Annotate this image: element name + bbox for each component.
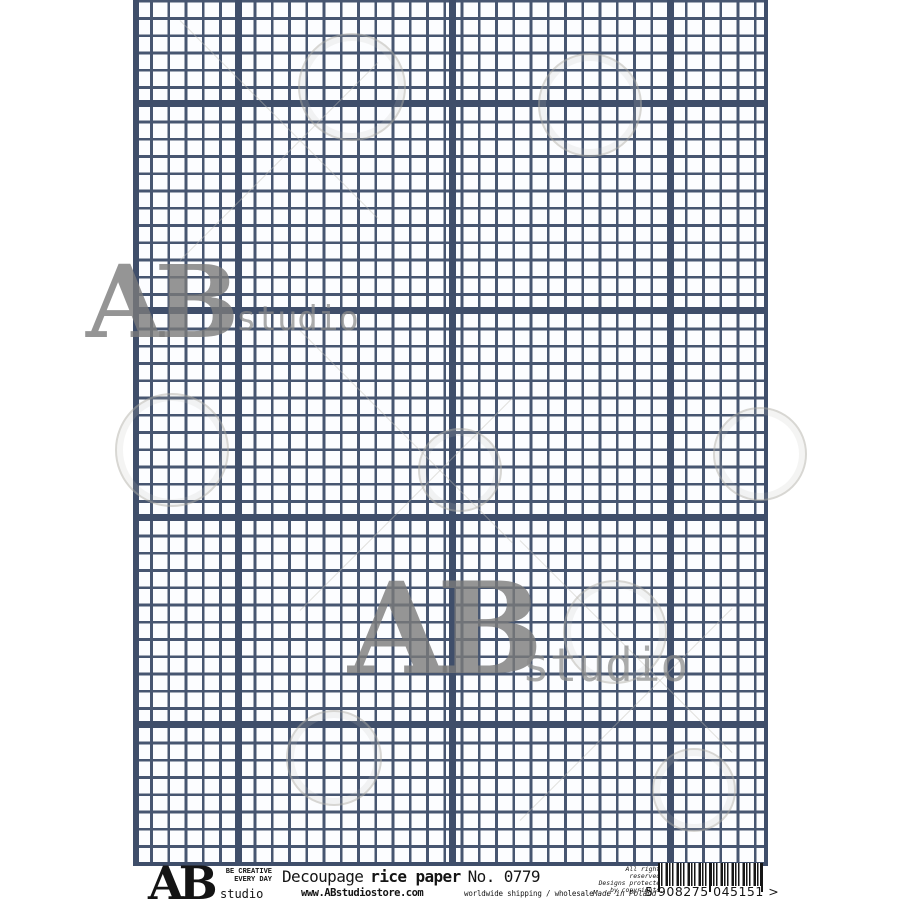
watermark-studio-text: studio <box>236 302 359 336</box>
watermark-stamp-circle <box>652 748 736 832</box>
title-number: No. 0779 <box>468 867 540 886</box>
product-title: Decoupagerice paperNo. 0779 <box>282 867 547 886</box>
brand-logo: AB <box>148 860 213 900</box>
watermark-stamp-circle <box>713 407 807 501</box>
watermark-stamp-circle <box>538 53 642 157</box>
watermark-stamp-circle <box>418 428 502 512</box>
barcode: 5 908275 045151 > <box>645 863 780 900</box>
watermark-studio-text: studio <box>522 642 688 688</box>
footer-label: AB studio BE CREATIVE EVERY DAY Decoupag… <box>0 866 900 900</box>
watermark-stamp-circle <box>286 710 382 806</box>
grid-major-line <box>235 0 242 862</box>
brand-logo-studio: studio <box>220 887 263 900</box>
watermark-stamp-circle <box>115 393 229 507</box>
title-emphasis: rice paper <box>370 867 460 886</box>
grid-major-line <box>133 721 764 728</box>
website-url: www.ABstudiostore.com <box>301 887 423 899</box>
product-scan: AB studio AB studio AB studio BE CREATIV… <box>0 0 900 900</box>
watermark-brand-text: AB <box>348 566 534 692</box>
grid-major-line <box>667 0 674 862</box>
tagline-line2: EVERY DAY <box>222 877 272 885</box>
grid-major-line <box>133 100 764 107</box>
title-prefix: Decoupage <box>282 867 363 886</box>
shipping-note: worldwide shipping / wholesale <box>464 889 593 898</box>
grid-major-line <box>133 514 764 521</box>
watermark-brand-text: AB <box>86 252 230 352</box>
barcode-digits: 5 908275 045151 > <box>645 884 779 899</box>
brand-tagline: BE CREATIVE EVERY DAY <box>222 869 272 884</box>
